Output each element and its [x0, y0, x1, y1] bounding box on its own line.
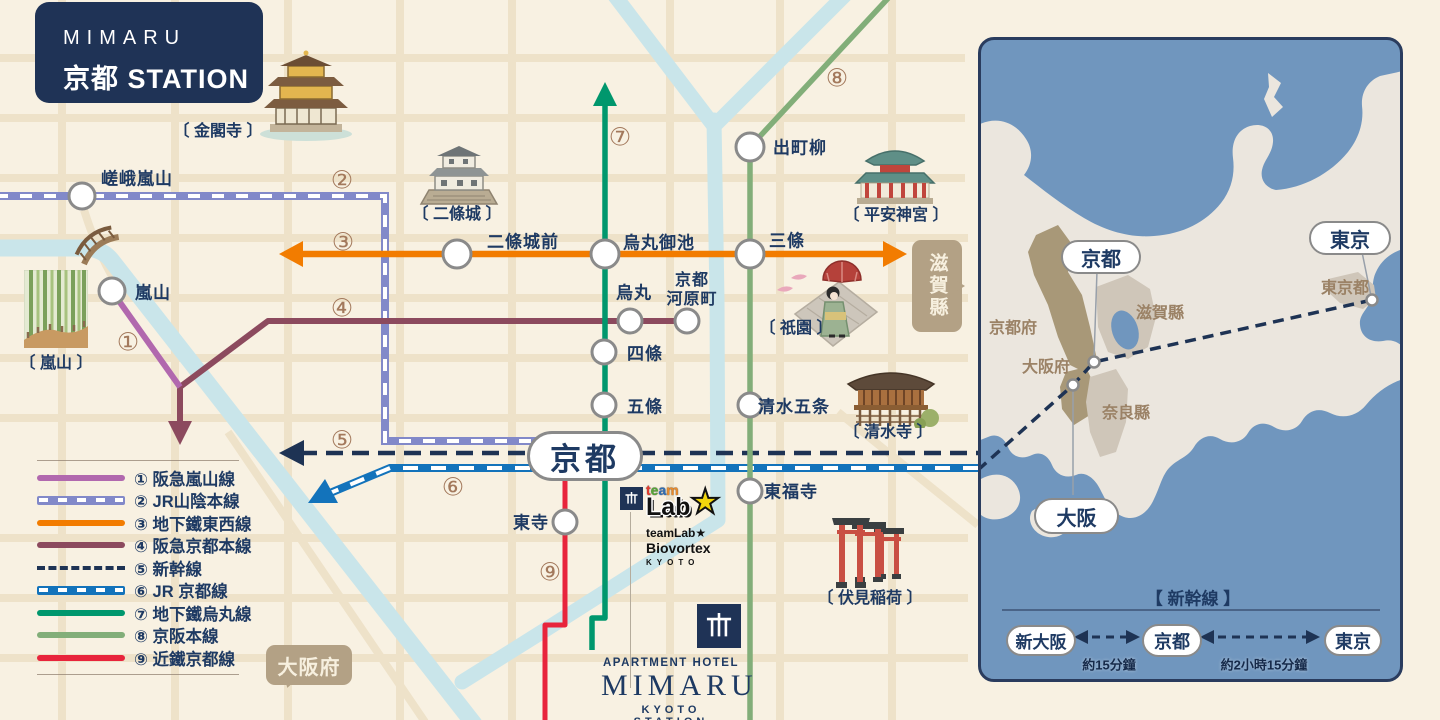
legend-label-7: ⑦ 地下鐵烏丸線	[134, 601, 252, 625]
line-badge-9: ⑨	[539, 560, 561, 585]
landmark-label-kiyomizu: 〔 清水寺 〕	[844, 418, 933, 442]
brand-name: MIMARU	[63, 27, 263, 50]
shinkansen-stop-tokyo: 東京	[1324, 625, 1382, 656]
inset-label-tokyo-to: 東京都	[1321, 274, 1369, 298]
station-dot-karasuma-oike	[591, 240, 619, 268]
station-label-karasuma-oike: 烏丸御池	[623, 229, 695, 254]
landmark-label-gion: 〔 祇園 〕	[760, 314, 833, 338]
station-label-arashiyama: 嵐山	[135, 279, 171, 304]
station-dot-kyoto-kawaramachi	[675, 309, 699, 333]
hotel-gate-glyph	[700, 607, 738, 645]
legend-item-8: ⑧ 京阪本線	[37, 627, 239, 644]
legend-swatch-8	[37, 632, 125, 638]
station-dot-nijojo-mae	[443, 240, 471, 268]
station-dot-toji	[553, 510, 577, 534]
landmark-label-arashiyama: 〔 嵐山 〕	[20, 349, 93, 373]
teamlab-star-icon: ★	[690, 485, 720, 519]
shinkansen-diagram-title: 【 新幹線 】	[1146, 585, 1240, 610]
line-karasuma	[592, 82, 617, 650]
station-label-kiyomizu-gojo: 清水五条	[758, 393, 830, 418]
station-label-nijojo-mae: 二條城前	[487, 228, 559, 253]
legend-swatch-1	[37, 475, 125, 481]
nijo-castle-illustration	[413, 138, 505, 206]
line-badge-8: ⑧	[826, 66, 848, 91]
station-dot-sanjo	[736, 240, 764, 268]
inset-label-shiga: 滋賀縣	[1136, 299, 1184, 323]
legend-item-9: ⑨ 近鐵京都線	[37, 649, 239, 666]
line-badge-1: ①	[117, 330, 139, 355]
legend-label-6: ⑥ JR 京都線	[134, 578, 228, 602]
line-badge-4: ④	[331, 296, 353, 321]
landmark-label-kinkakuji: 〔 金閣寺 〕	[174, 117, 263, 141]
legend-swatch-9	[37, 655, 125, 661]
station-label-demachiyanagi: 出町柳	[773, 134, 827, 159]
inset-label-kyoto-fu: 京都府	[989, 314, 1037, 338]
legend-swatch-7	[37, 610, 125, 616]
legend-item-6: ⑥ JR 京都線	[37, 582, 239, 599]
legend-swatch-2	[37, 496, 125, 505]
line-badge-5: ⑤	[331, 428, 353, 453]
fushimi-inari-illustration	[830, 510, 908, 592]
inset-pill-tokyo: 東京	[1309, 221, 1391, 255]
station-dot-arashiyama	[99, 278, 125, 304]
landmark-label-nijo-castle: 〔 二條城 〕	[413, 200, 502, 224]
legend-item-1: ① 阪急嵐山線	[37, 469, 239, 486]
legend-separator-top	[37, 460, 239, 461]
line-badge-2: ②	[331, 168, 353, 193]
mimaru-kyoto-access-map: 嵯峨嵐山 嵐山 二條城前 烏丸御池 三條 出町柳 烏丸 京都 河原町 四條 五條…	[0, 0, 1440, 720]
inset-pill-kyoto: 京都	[1061, 240, 1141, 274]
shinkansen-stop-shin-osaka: 新大阪	[1006, 625, 1076, 656]
hotel-logo-icon	[697, 604, 741, 648]
legend-label-1: ① 阪急嵐山線	[134, 466, 235, 490]
legend-swatch-5	[37, 566, 125, 570]
line-legend: ① 阪急嵐山線 ② JR山陰本線 ③ 地下鐵東西線 ④ 阪急京都本線 ⑤ 新幹線…	[37, 460, 239, 675]
legend-label-8: ⑧ 京阪本線	[134, 623, 219, 647]
japan-inset-map: 京都府 大阪府 滋賀縣 奈良縣 東京都 京都 東京 大阪 【 新幹線 】 新大阪…	[978, 37, 1403, 682]
station-label-karasuma: 烏丸	[616, 279, 652, 304]
legend-swatch-3	[37, 520, 125, 526]
shinkansen-duration-2: 約2小時15分鐘	[1221, 655, 1308, 674]
shiga-bubble-text: 滋賀縣	[924, 253, 951, 319]
hotel-logo-name: MIMARU	[601, 669, 741, 703]
teamlab-subtitle-2: Biovortex	[646, 540, 756, 556]
legend-label-9: ⑨ 近鐵京都線	[134, 646, 235, 670]
heian-shrine-illustration	[846, 133, 944, 207]
teamlab-biovortex-logo: team Lab ★ teamLab★ Biovortex KYOTO	[646, 483, 756, 567]
inset-pill-osaka: 大阪	[1034, 498, 1119, 534]
legend-label-2: ② JR山陰本線	[134, 488, 240, 512]
inset-label-osaka-fu: 大阪府	[1022, 353, 1070, 377]
brand-station: 京都 STATION	[63, 57, 263, 96]
teamlab-subtitle-3: KYOTO	[646, 558, 756, 567]
shiga-prefecture-bubble: 滋賀縣	[912, 240, 962, 332]
legend-item-3: ③ 地下鐵東西線	[37, 514, 239, 531]
station-dot-karasuma	[618, 309, 642, 333]
landmark-label-heian-shrine: 〔 平安神宮 〕	[844, 201, 949, 225]
shikoku-island	[978, 475, 1020, 520]
brand-logo-box: MIMARU 京都 STATION	[35, 2, 263, 103]
station-dot-gojo	[592, 393, 616, 417]
station-label-toji: 東寺	[513, 509, 549, 534]
gion-geisha-illustration	[763, 256, 881, 354]
station-label-sanjo: 三條	[769, 227, 805, 252]
station-dot-saga-arashiyama	[69, 183, 95, 209]
legend-label-5: ⑤ 新幹線	[134, 556, 202, 580]
kyoto-hub-station: 京都	[527, 431, 643, 481]
kinkakuji-illustration	[250, 50, 362, 142]
legend-item-4: ④ 阪急京都本線	[37, 537, 239, 554]
pointed-island	[1264, 73, 1283, 117]
legend-label-4: ④ 阪急京都本線	[134, 533, 252, 557]
line-badge-6: ⑥	[442, 475, 464, 500]
hotel-logo-block: APARTMENT HOTEL MIMARU KYOTO STATION	[601, 604, 741, 720]
line-jr-kyoto	[308, 468, 978, 503]
mimaru-map-marker-icon	[620, 487, 643, 510]
kyoto-dot	[1089, 357, 1100, 368]
inset-label-nara: 奈良縣	[1102, 399, 1150, 423]
legend-label-3: ③ 地下鐵東西線	[134, 511, 252, 535]
arashiyama-bamboo-illustration	[24, 270, 88, 348]
station-label-tofukuji: 東福寺	[764, 478, 818, 503]
teamlab-subtitle-1: teamLab★	[646, 526, 756, 540]
line-badge-7: ⑦	[609, 125, 631, 150]
landmark-label-fushimi-inari: 〔 伏見稲荷 〕	[818, 584, 923, 608]
legend-item-2: ② JR山陰本線	[37, 492, 239, 509]
station-label-shijo: 四條	[627, 340, 663, 365]
line-badge-3: ③	[332, 230, 354, 255]
mimaru-gate-glyph	[622, 489, 641, 508]
osaka-dot	[1068, 380, 1079, 391]
station-dot-demachiyanagi	[736, 133, 764, 161]
legend-separator-bottom	[37, 674, 239, 675]
shinkansen-stop-kyoto: 京都	[1142, 624, 1202, 657]
osaka-prefecture-bubble: 大阪府	[266, 645, 352, 685]
legend-swatch-6	[37, 586, 125, 595]
shinkansen-duration-1: 約15分鐘	[1082, 655, 1135, 674]
station-label-gojo: 五條	[627, 393, 663, 418]
legend-swatch-4	[37, 542, 125, 548]
hotel-logo-top-text: APARTMENT HOTEL	[601, 657, 741, 669]
legend-item-7: ⑦ 地下鐵烏丸線	[37, 604, 239, 621]
station-label-kyoto-kawaramachi-2: 河原町	[666, 285, 717, 309]
station-dot-shijo	[592, 340, 616, 364]
station-label-saga-arashiyama: 嵯峨嵐山	[101, 165, 173, 190]
hotel-logo-sub-text: KYOTO STATION	[601, 704, 741, 720]
legend-item-5: ⑤ 新幹線	[37, 559, 239, 576]
legend-rows: ① 阪急嵐山線 ② JR山陰本線 ③ 地下鐵東西線 ④ 阪急京都本線 ⑤ 新幹線…	[37, 461, 239, 674]
